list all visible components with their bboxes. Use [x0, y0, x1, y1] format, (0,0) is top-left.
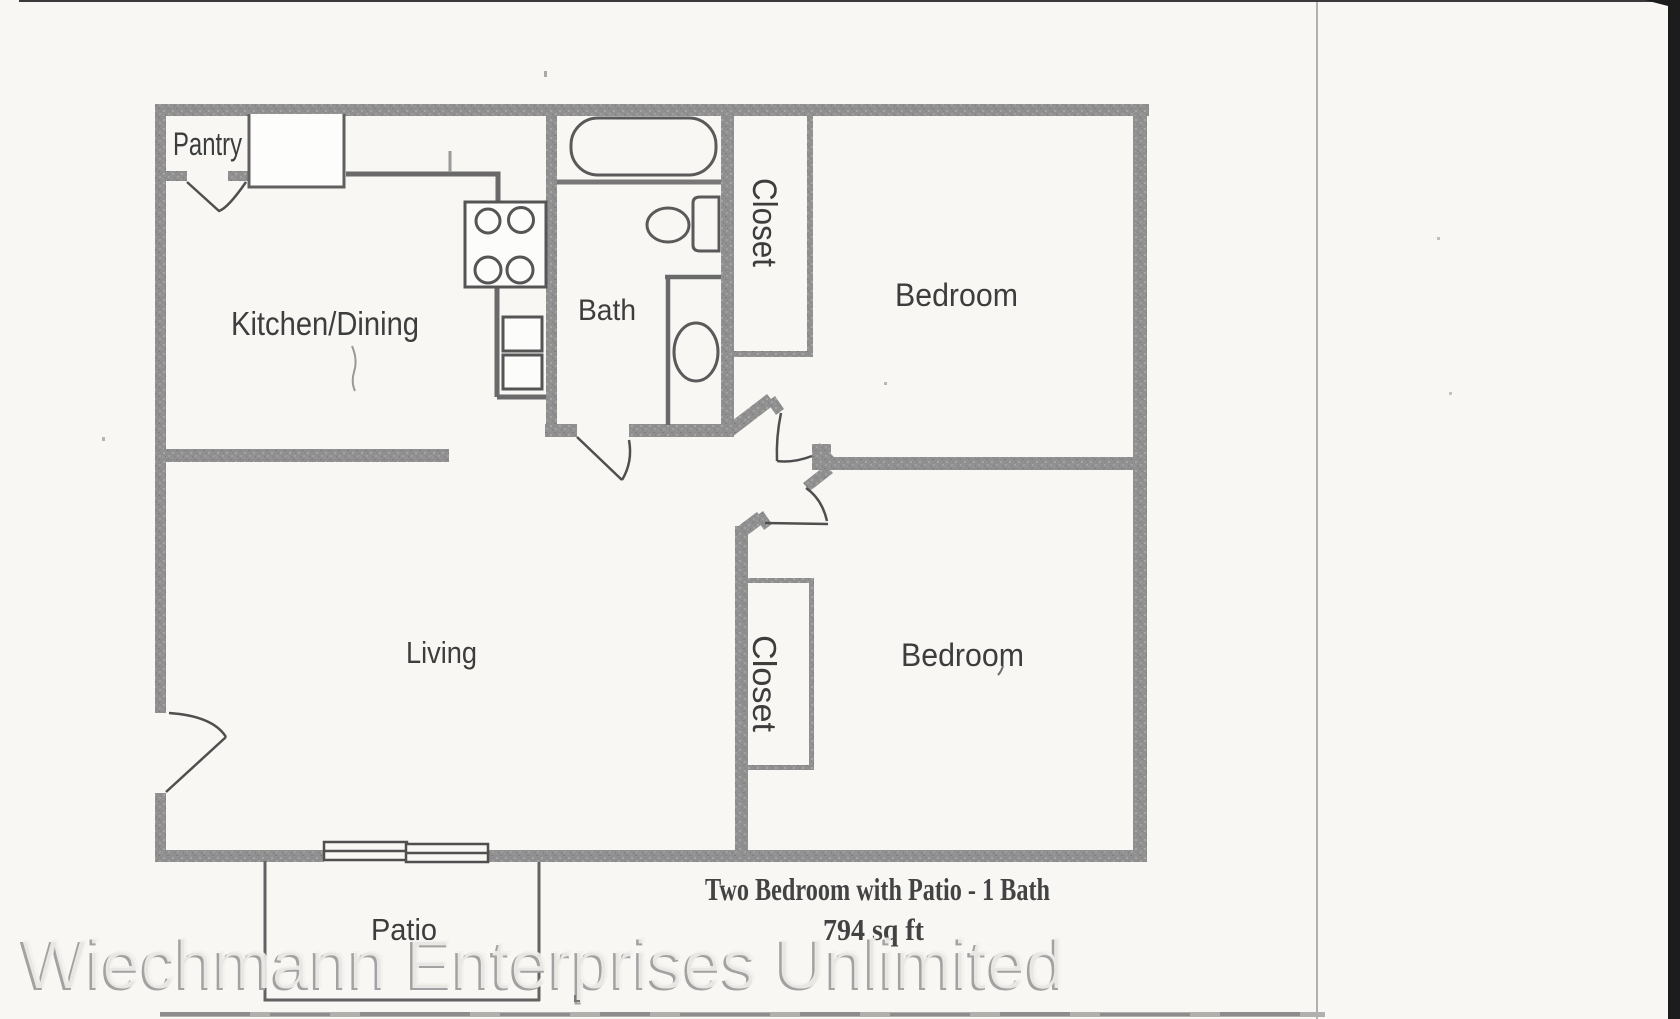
svg-text:Living: Living: [406, 635, 477, 670]
svg-text:Pantry: Pantry: [173, 126, 242, 162]
svg-text:Two Bedroom with Patio - 1 Bat: Two Bedroom with Patio - 1 Bath: [705, 871, 1050, 907]
svg-text:Kitchen/Dining: Kitchen/Dining: [231, 305, 419, 342]
svg-text:Bedroom: Bedroom: [901, 637, 1024, 673]
svg-text:Closet: Closet: [745, 178, 783, 268]
svg-text:Bedroom: Bedroom: [895, 277, 1018, 313]
svg-text:Closet: Closet: [746, 635, 783, 732]
svg-text:Bath: Bath: [578, 294, 636, 327]
svg-text:Wiechmann Enterprises Unlimite: Wiechmann Enterprises Unlimited: [22, 925, 1065, 1003]
